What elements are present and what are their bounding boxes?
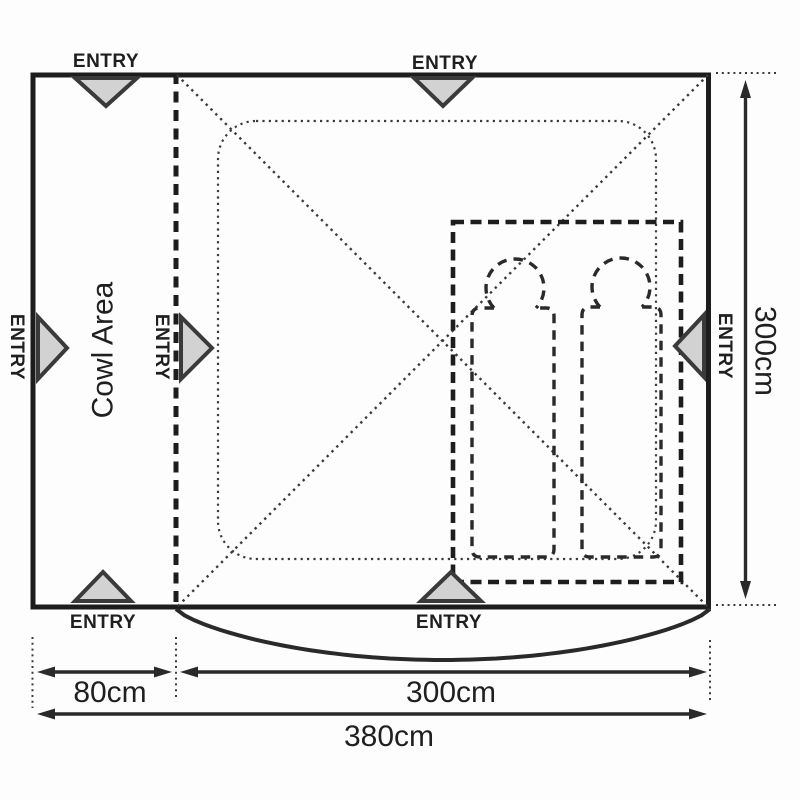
svg-text:ENTRY: ENTRY: [412, 53, 478, 74]
svg-text:80cm: 80cm: [73, 676, 146, 709]
svg-text:ENTRY: ENTRY: [6, 314, 27, 380]
svg-text:ENTRY: ENTRY: [416, 612, 482, 633]
svg-text:300cm: 300cm: [749, 306, 782, 396]
svg-text:Cowl Area: Cowl Area: [87, 281, 120, 418]
svg-text:380cm: 380cm: [344, 720, 434, 753]
svg-text:ENTRY: ENTRY: [714, 313, 735, 379]
svg-text:ENTRY: ENTRY: [73, 51, 139, 72]
svg-text:ENTRY: ENTRY: [151, 314, 172, 380]
svg-text:300cm: 300cm: [406, 676, 496, 709]
svg-text:ENTRY: ENTRY: [70, 612, 136, 633]
